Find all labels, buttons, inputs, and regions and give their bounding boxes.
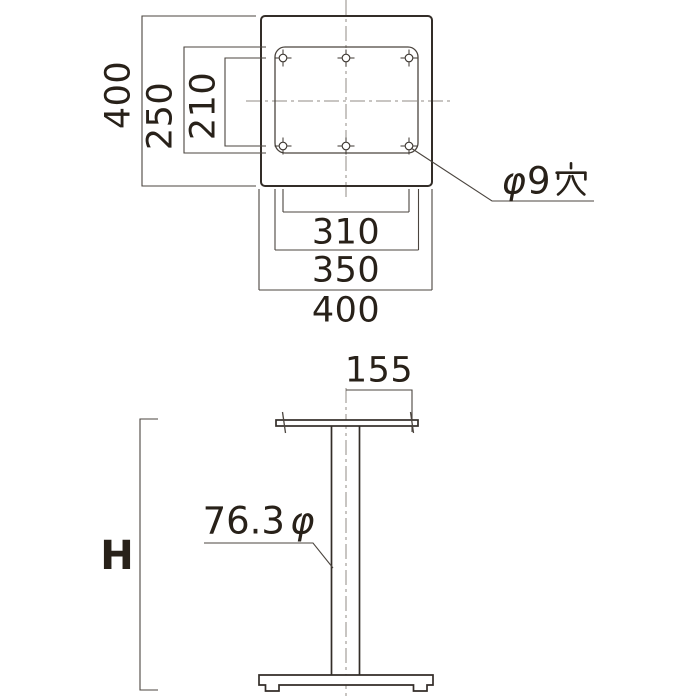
dim-label-350: 350 [312,254,380,289]
kanji-ana-glyph [553,162,588,197]
bolt-hole [401,50,418,67]
phi-symbol: φ [502,163,526,200]
column-diameter-value: 76.3 [203,503,285,540]
bolt-holes [275,50,418,155]
dim-label-400-bottom: 400 [312,294,380,329]
bolt-hole [275,138,292,155]
dim-bracket-height [140,419,158,690]
bolt-hole [275,50,292,67]
phi-symbol: φ [290,503,314,540]
dim-label-210: 210 [187,72,222,140]
dim-bracket-210 [225,58,266,146]
hole-note-label: φ9 [502,163,589,200]
column-note-label: 76.3φ [203,503,316,540]
top-plate-edge-view [276,420,418,426]
dim-label-height: H [100,536,133,576]
dim-label-250: 250 [144,82,179,150]
dim-label-155: 155 [345,354,413,389]
technical-drawing-page: 400 250 210 310 350 400 φ9 155 76.3φ H [0,0,700,700]
bolt-hole [338,50,355,67]
bolt-hole [338,138,355,155]
hole-diameter-value: 9 [527,163,551,200]
dim-label-310: 310 [312,216,380,251]
side-view [140,388,433,700]
dim-label-400-left: 400 [102,61,137,129]
bolt-hole [401,138,418,155]
column-note-leader-line [204,543,333,568]
